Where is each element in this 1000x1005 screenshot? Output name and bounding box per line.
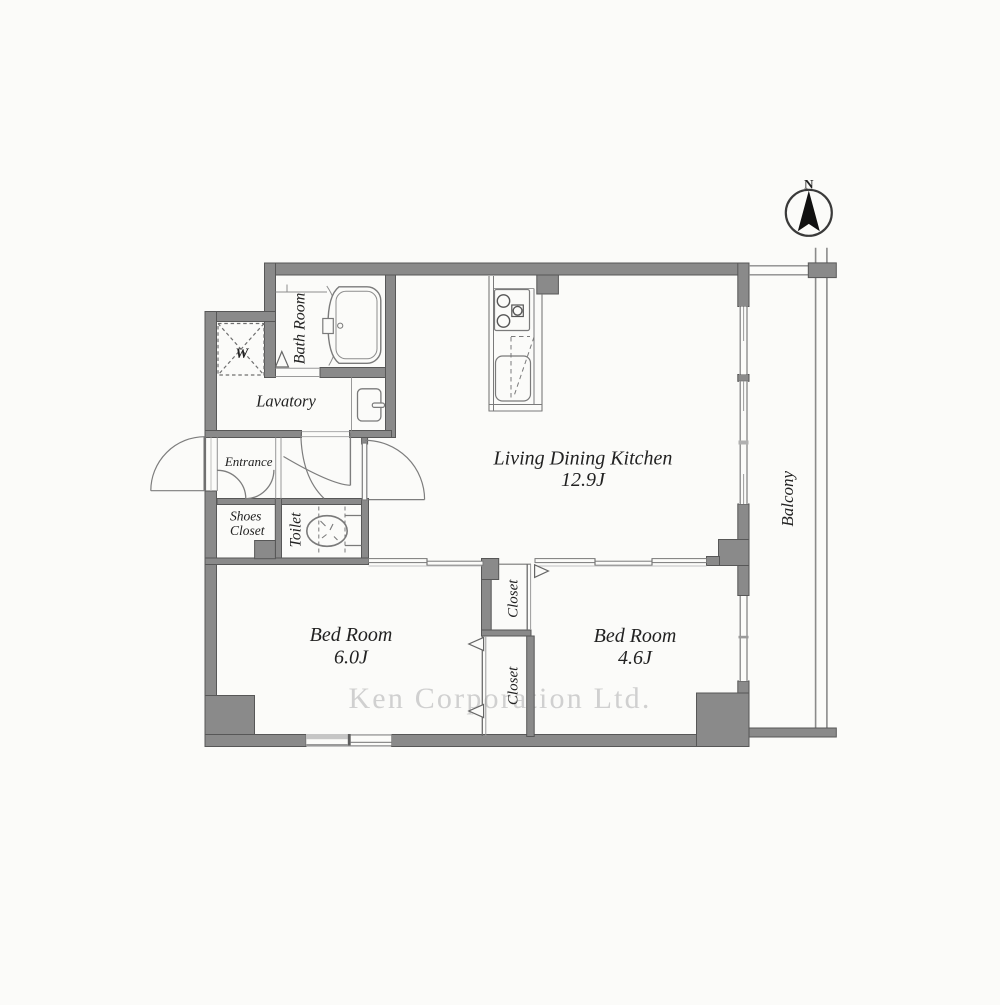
svg-text:Living Dining Kitchen: Living Dining Kitchen bbox=[493, 448, 673, 470]
svg-text:Closet: Closet bbox=[230, 523, 266, 538]
svg-text:Toilet: Toilet bbox=[288, 512, 305, 547]
svg-text:N: N bbox=[804, 177, 814, 192]
svg-text:Bed Room: Bed Room bbox=[594, 625, 677, 647]
svg-text:Bath Room: Bath Room bbox=[292, 293, 309, 365]
svg-text:Bed Room: Bed Room bbox=[310, 624, 393, 646]
svg-text:6.0J: 6.0J bbox=[334, 647, 369, 669]
svg-text:Lavatory: Lavatory bbox=[255, 392, 316, 411]
svg-text:W: W bbox=[235, 346, 249, 362]
svg-text:Closet: Closet bbox=[506, 579, 522, 618]
svg-text:Entrance: Entrance bbox=[224, 454, 273, 469]
svg-text:Closet: Closet bbox=[506, 666, 522, 705]
svg-text:Balcony: Balcony bbox=[778, 470, 797, 526]
svg-text:12.9J: 12.9J bbox=[561, 469, 606, 491]
svg-text:Shoes: Shoes bbox=[230, 509, 262, 524]
svg-text:4.6J: 4.6J bbox=[618, 647, 653, 669]
svg-text:Ken Corporation Ltd.: Ken Corporation Ltd. bbox=[348, 682, 651, 715]
